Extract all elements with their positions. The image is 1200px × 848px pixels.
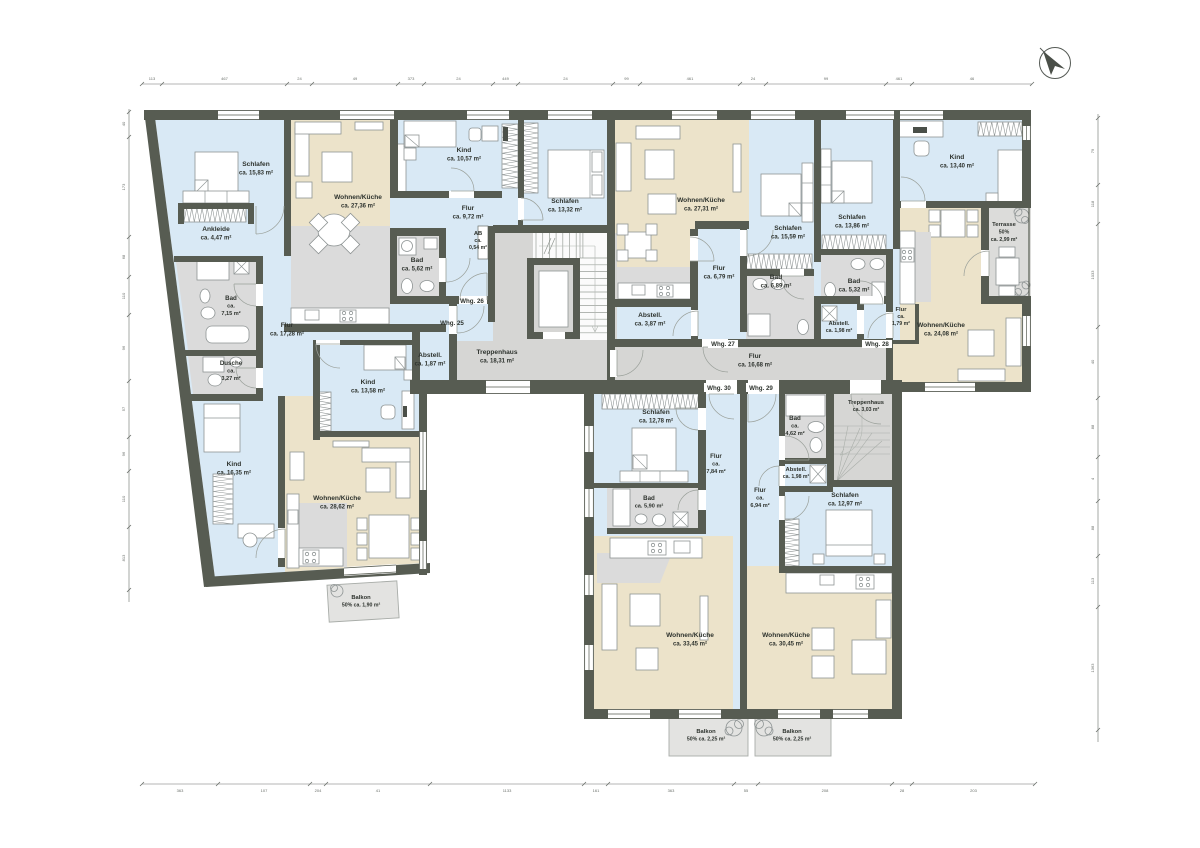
svg-text:ca. 5,32 m²: ca. 5,32 m² [839,286,870,293]
svg-text:Wohnen/Küche: Wohnen/Küche [334,194,382,201]
svg-text:7,15 m²: 7,15 m² [221,310,240,317]
svg-text:113: 113 [1090,577,1095,584]
svg-text:4,62 m²: 4,62 m² [785,430,804,437]
svg-text:Abstell.: Abstell. [829,321,850,327]
svg-text:ca. 4,47 m²: ca. 4,47 m² [201,234,232,241]
svg-text:AB: AB [474,231,482,237]
svg-text:ca. 13,32 m²: ca. 13,32 m² [548,206,582,213]
svg-text:ca. 15,59 m²: ca. 15,59 m² [771,233,805,240]
svg-text:Schlafen: Schlafen [831,492,858,499]
svg-text:ca. 12,97 m²: ca. 12,97 m² [828,500,862,507]
svg-text:Balkon: Balkon [696,729,716,735]
svg-text:Whg. 27: Whg. 27 [711,341,735,348]
svg-text:41: 41 [376,788,381,793]
svg-text:ca. 27,36 m²: ca. 27,36 m² [341,202,375,209]
svg-text:461: 461 [687,76,694,81]
svg-text:Wohnen/Küche: Wohnen/Küche [313,495,361,502]
svg-text:24: 24 [456,76,461,81]
svg-text:49: 49 [353,76,358,81]
svg-text:Treppenhaus: Treppenhaus [476,349,517,356]
svg-text:ca.: ca. [791,424,799,430]
svg-text:ca. 27,31 m²: ca. 27,31 m² [684,205,718,212]
svg-text:ca. 15,83 m²: ca. 15,83 m² [239,169,273,176]
svg-text:Flur: Flur [896,307,908,313]
svg-text:1133: 1133 [503,788,512,793]
svg-text:Schlafen: Schlafen [242,161,269,168]
svg-text:ca. 12,78 m²: ca. 12,78 m² [639,417,673,424]
svg-text:ca. 6,79 m²: ca. 6,79 m² [704,273,735,280]
svg-text:ca. 33,45 m²: ca. 33,45 m² [673,640,707,647]
svg-text:110: 110 [121,292,126,299]
svg-text:Whg. 25: Whg. 25 [440,320,464,327]
svg-text:Flur: Flur [281,322,294,329]
svg-text:ca. 1,98 m²: ca. 1,98 m² [783,474,810,480]
svg-text:Whg. 26: Whg. 26 [460,298,484,305]
svg-text:Abstell.: Abstell. [418,352,442,359]
svg-text:Kind: Kind [950,154,965,161]
svg-text:Abstell.: Abstell. [786,467,807,473]
svg-text:Schlafen: Schlafen [551,198,578,205]
svg-text:ca. 2,99 m²: ca. 2,99 m² [991,237,1018,243]
svg-text:88: 88 [1090,525,1095,530]
svg-text:ca.: ca. [227,369,235,375]
svg-text:449: 449 [502,76,509,81]
svg-text:Schlafen: Schlafen [642,409,669,416]
svg-text:96: 96 [121,345,126,350]
svg-text:ca. 9,72 m²: ca. 9,72 m² [453,213,484,220]
svg-text:118: 118 [1090,200,1095,207]
svg-text:96: 96 [121,451,126,456]
svg-text:203: 203 [970,788,977,793]
svg-text:6,94 m²: 6,94 m² [750,502,769,509]
svg-text:1363: 1363 [1090,663,1095,673]
svg-text:110: 110 [121,495,126,502]
svg-text:ca. 24,08 m²: ca. 24,08 m² [924,330,958,337]
svg-text:Schlafen: Schlafen [838,214,865,221]
svg-text:24: 24 [563,76,568,81]
svg-text:ca. 1,98 m²: ca. 1,98 m² [826,328,853,334]
svg-text:461: 461 [896,76,903,81]
svg-text:1,79 m²: 1,79 m² [892,321,910,327]
svg-text:Whg. 28: Whg. 28 [865,341,889,348]
svg-text:Bad: Bad [411,257,423,264]
svg-text:Ankleide: Ankleide [202,226,230,233]
svg-text:50%: 50% [999,230,1010,236]
svg-text:208: 208 [822,788,829,793]
svg-text:1033: 1033 [1090,270,1095,280]
svg-text:ca. 17,28 m²: ca. 17,28 m² [270,330,304,337]
svg-text:28: 28 [900,788,905,793]
svg-text:ca. 18,31 m²: ca. 18,31 m² [480,357,514,364]
svg-text:107: 107 [261,788,268,793]
svg-text:173: 173 [121,183,126,190]
svg-text:ca.: ca. [756,496,764,502]
svg-text:24: 24 [751,76,756,81]
svg-text:Kind: Kind [457,147,472,154]
svg-text:24: 24 [297,76,302,81]
svg-text:68: 68 [121,254,126,259]
svg-text:363: 363 [177,788,184,793]
svg-text:ca.: ca. [227,304,235,310]
svg-text:204: 204 [315,788,322,793]
svg-text:ca. 16,35 m²: ca. 16,35 m² [217,469,251,476]
svg-text:ca. 3,03 m²: ca. 3,03 m² [853,407,880,413]
svg-text:Treppenhaus: Treppenhaus [848,400,884,406]
svg-text:113: 113 [149,76,156,81]
svg-text:Bad: Bad [225,295,237,302]
svg-text:Kind: Kind [227,461,242,468]
svg-text:0,54 m²: 0,54 m² [469,245,487,251]
svg-text:55: 55 [744,788,749,793]
svg-text:467: 467 [221,76,228,81]
svg-text:ca. 28,62 m²: ca. 28,62 m² [320,503,354,510]
svg-text:40: 40 [1090,359,1095,364]
svg-text:ca. 6,89 m²: ca. 6,89 m² [761,282,792,289]
svg-text:Wohnen/Küche: Wohnen/Küche [917,322,965,329]
svg-text:40: 40 [121,121,126,126]
svg-text:813: 813 [121,554,126,561]
svg-text:ca. 1,87 m²: ca. 1,87 m² [415,360,446,367]
svg-text:50% ca. 2,25 m²: 50% ca. 2,25 m² [773,737,812,743]
svg-text:Bad: Bad [643,495,655,502]
svg-text:Bad: Bad [770,274,782,281]
svg-text:363: 363 [668,788,675,793]
svg-text:99: 99 [824,76,829,81]
svg-text:ca. 3,87 m²: ca. 3,87 m² [635,320,666,327]
svg-text:57: 57 [121,406,126,411]
svg-text:Balkon: Balkon [782,729,802,735]
svg-text:Kind: Kind [361,379,376,386]
svg-text:ca.: ca. [474,238,482,244]
svg-text:Flur: Flur [749,353,762,360]
svg-text:Whg. 30: Whg. 30 [707,385,731,392]
svg-text:161: 161 [593,788,600,793]
svg-text:Terrasse: Terrasse [992,222,1017,228]
svg-text:Flur: Flur [710,453,722,460]
svg-text:ca. 5,90 m²: ca. 5,90 m² [635,503,664,510]
svg-text:ca.: ca. [897,314,905,320]
svg-text:79: 79 [1090,148,1095,153]
svg-text:Bad: Bad [789,415,801,422]
svg-text:3,27 m²: 3,27 m² [221,375,240,382]
svg-text:Dusche: Dusche [220,360,243,367]
svg-text:Wohnen/Küche: Wohnen/Küche [677,197,725,204]
svg-text:ca. 5,62 m²: ca. 5,62 m² [402,265,433,272]
svg-text:Abstell.: Abstell. [638,312,662,319]
svg-text:99: 99 [624,76,629,81]
svg-text:Flur: Flur [754,487,766,494]
svg-text:Schlafen: Schlafen [774,225,801,232]
svg-text:50% ca. 1,90 m²: 50% ca. 1,90 m² [342,603,381,609]
svg-text:ca. 13,58 m²: ca. 13,58 m² [351,387,385,394]
svg-text:ca. 13,86 m²: ca. 13,86 m² [835,222,869,229]
svg-text:ca. 10,57 m²: ca. 10,57 m² [447,155,481,162]
svg-text:Balkon: Balkon [351,595,371,601]
svg-text:Wohnen/Küche: Wohnen/Küche [666,632,714,639]
svg-text:50% ca. 2,25 m²: 50% ca. 2,25 m² [687,737,726,743]
svg-text:46: 46 [970,76,975,81]
svg-text:Bad: Bad [848,278,860,285]
svg-text:Flur: Flur [713,265,726,272]
svg-text:Whg. 29: Whg. 29 [749,385,773,392]
svg-text:ca. 16,68 m²: ca. 16,68 m² [738,361,772,368]
svg-text:ca. 30,45 m²: ca. 30,45 m² [769,640,803,647]
svg-text:88: 88 [1090,424,1095,429]
svg-text:ca. 13,40 m²: ca. 13,40 m² [940,162,974,169]
svg-text:373: 373 [408,76,415,81]
svg-text:Wohnen/Küche: Wohnen/Küche [762,632,810,639]
svg-text:7,84 m²: 7,84 m² [706,468,725,475]
svg-text:ca.: ca. [712,462,720,468]
svg-text:Flur: Flur [462,205,475,212]
